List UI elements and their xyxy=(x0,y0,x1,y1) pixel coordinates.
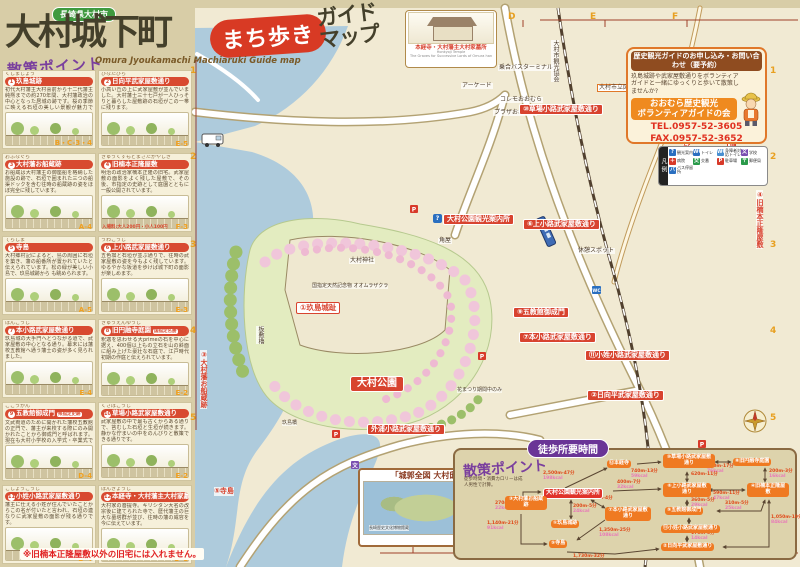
route-edge-label: 310m-5分25kcal xyxy=(725,502,749,512)
route-edge-label: 200m-3分16kcal xyxy=(769,470,793,480)
route-edge-label: 1,350m-25分108kcal xyxy=(599,529,631,539)
route-edge-label: 170m-3分14kcal xyxy=(691,532,715,542)
title-romaji: Omura Jyoukamachi Machiaruki Guide map xyxy=(95,56,301,66)
map-label-flower-festival-parking: 花まつり期間中のみ xyxy=(457,388,502,393)
point-card-4: きゅうくすもとまさたかやしき 4旧楠本正隆屋敷 明治の政治家楠本正隆の旧宅。武家… xyxy=(98,153,192,232)
legend-title: 凡例 xyxy=(659,147,668,185)
map-label-kusumoto-residence: ④旧楠本正隆屋敷 xyxy=(756,190,763,249)
legend-item: 文学校 xyxy=(741,149,765,157)
grid-number-left-3: 3 xyxy=(190,240,196,250)
route-edge-label: 1,050m-19分84kcal xyxy=(771,516,800,526)
map-label-uwakoji-street: ⑥上小路武家屋敷通り xyxy=(523,219,600,230)
post-office-icon: 〒 xyxy=(741,158,748,165)
honkyoji-illustration xyxy=(408,12,494,44)
bus-stop-icon: バ xyxy=(669,167,676,174)
map-label-tourism-association: 大村市観光協会 xyxy=(551,40,559,82)
route-edge-label: 1,730m-32分 xyxy=(573,555,605,560)
svg-text:文: 文 xyxy=(352,462,358,470)
grid-number-left-2: 2 xyxy=(190,152,196,162)
guide-map-sheet: P P P P WC 文 D E F C 1 2 3 4 5 1 2 3 4 5… xyxy=(0,0,800,567)
map-label-itajiki-turret: 板敷櫓 xyxy=(256,326,264,344)
route-edge-label: 200m-5分24kcal xyxy=(573,505,597,515)
point-card-6: うわこうじ 6上小路武家屋敷通り 五色塀と石垣が並ぶ通りで、往時の武家屋敷の姿を… xyxy=(98,236,192,315)
walking-time-box: 徒歩所要時間 散策ポイント 徒歩時間・消費カロリーは成人男性で計算。 xyxy=(453,448,797,560)
svg-text:P: P xyxy=(412,207,417,214)
volunteer-guide-org: おおむら歴史観光ボランティアガイドの会 xyxy=(631,98,737,120)
map-label-coremo-omura: コレモおおむら xyxy=(499,97,543,103)
map-label-kushima-castle: ①玖島城趾 xyxy=(296,302,340,314)
route-node-kushima: ①玖島城跡 xyxy=(551,520,579,528)
point-card-2: ひなたびら 2日向平武家屋敷通り 小高い丘の上に武家屋敷が並んでいました。大村藩… xyxy=(98,70,192,149)
legend-item: ババス停留所 xyxy=(669,166,693,174)
route-node-terashima: ⑤寺島 xyxy=(549,540,567,548)
legend-item: WC身障者対応トイレ xyxy=(717,149,741,157)
point-card-5: てらしま 5寺島 大村郷村記によると、島の周囲に石垣を築き、藩の船番所が置かれて… xyxy=(2,236,96,315)
map-label-omurazakura: 国指定天然記念物 オオムラザクラ xyxy=(312,284,388,289)
legend-item: WCトイレ xyxy=(693,149,717,157)
legend-item: 交交番 xyxy=(693,158,717,165)
map-label-omura-shrine: 大村神社 xyxy=(349,258,375,264)
grid-number-1: 1 xyxy=(770,66,776,76)
map-label-omura-park: 大村公園 xyxy=(350,376,404,392)
honkyoji-inset-box: 本経寺・大村藩主大村家墓所 Honkyoji Temple The Graves… xyxy=(405,10,497,68)
contact-body: 玖島城跡や武家屋敷通りをボランティアガイドと一緒にゆっくりと歩いて散策しませんか… xyxy=(631,73,739,96)
map-label-kadoya: 角屋 xyxy=(438,238,452,244)
grid-letter-f: F xyxy=(672,12,678,22)
point-card-1: くしまじょう 1玖島城跡 初代大村藩主大村喜前から十二代藩主純熈までの約270年… xyxy=(2,70,96,149)
route-edge-label: 620m-11分 xyxy=(691,473,718,478)
route-node-kusaba: ⑩草場小路武家屋敷通り xyxy=(663,454,715,468)
svg-text:P: P xyxy=(334,432,339,439)
toilet-icon: WC xyxy=(693,149,700,156)
map-label-bus-terminal: 乗合バスターミナル xyxy=(498,65,554,71)
map-label-ofunagura: ③大村藩お船蔵跡 xyxy=(200,350,207,409)
route-node-ofunagura: ③大村藩お船蔵跡 xyxy=(505,496,547,510)
legend-item: ＋病院 xyxy=(669,158,693,165)
school-icon: 文 xyxy=(741,149,748,156)
grid-number-left-5: 5 xyxy=(190,413,196,423)
legend-item: ?観光案内 xyxy=(669,149,693,157)
map-label-hokaura-street: 外浦小路武家屋敷通り xyxy=(367,424,445,435)
point-card-8: きゅうえんゆうじ 8旧円融寺庭園国指定名勝 釈迦を思わせる大primeの石を中心… xyxy=(98,319,192,398)
compass-rose xyxy=(744,410,766,432)
route-node-uwakoji: ⑥上小路武家屋敷通り xyxy=(663,483,711,497)
point-card-3: おふなぐら 3大村藩お船蔵跡 お船蔵は大村藩主の御座船を格納した施設の跡で、石垣… xyxy=(2,153,96,232)
map-label-rest-spot: 休憩スポット xyxy=(577,248,615,254)
map-legend: 凡例 ?観光案内 WCトイレ WC身障者対応トイレ 文学校 ＋病院 交交番 P駐… xyxy=(658,146,768,186)
grid-letter-d: D xyxy=(508,12,515,22)
point-title: 1玖島城跡 xyxy=(5,77,93,86)
title-bubble: まち歩き xyxy=(209,13,327,59)
route-node-info-center: 大村公園観光案内所 xyxy=(543,488,603,499)
route-node-koshokoji: ⑪小姓小路武家屋敷通り xyxy=(661,525,720,533)
route-node-honkoji: ⑦本小路武家屋敷通り xyxy=(605,507,651,521)
page-title: 大村城下町 xyxy=(5,15,170,51)
school-icon: 文 xyxy=(351,461,359,470)
guide-contact-box: 歴史観光ガイドのお申し込み・お問い合わせ（要予約） 玖島城跡や武家屋敷通りをボラ… xyxy=(626,47,767,144)
grid-number-left-1: 1 xyxy=(190,66,196,76)
information-icon: ? xyxy=(433,214,442,223)
hospital-icon: ＋ xyxy=(669,158,676,165)
svg-text:WC: WC xyxy=(592,288,601,294)
route-edge-label: 2,500m-47分198kcal xyxy=(543,472,575,482)
accessible-toilet-icon: WC xyxy=(717,149,724,156)
entry-fee: 入場料:大人200円・小人100円 xyxy=(102,224,168,230)
point-card-9: ごこうかん 9五教館御成門県指定史跡 文武両道のために開かれた藩校五教館の正門で… xyxy=(2,402,96,481)
contact-header: 歴史観光ガイドのお申し込み・お問い合わせ（要予約） xyxy=(631,51,762,71)
grid-number-2: 2 xyxy=(770,152,776,162)
route-edge-label: 1,140m-21分91kcal xyxy=(487,522,519,532)
svg-text:P: P xyxy=(480,354,485,361)
guide-character-illustration xyxy=(739,92,763,126)
route-node-hinatabira: ②日向平武家屋敷通り xyxy=(661,543,714,551)
title-suffix: ガイドマップ xyxy=(316,1,381,52)
entry-warning-note: ※旧楠本正隆屋敷以外の旧宅には入れません。 xyxy=(20,548,204,560)
route-node-kusumoto: ④旧楠本正隆屋敷 xyxy=(747,483,789,497)
grid-letter-e: E xyxy=(590,12,596,22)
route-edge-label: 400m-7分32kcal xyxy=(617,481,641,491)
route-edge-label: 740m-13分59kcal xyxy=(631,470,658,480)
map-label-honkoji-street: ⑦本小路武家屋敷通り xyxy=(519,332,596,343)
map-label-gokokan-gate: ⑨五教館御成門 xyxy=(513,307,569,318)
map-label-kusaba-street: ⑩草場小路武家屋敷通り xyxy=(519,104,603,115)
map-label-koshokoji-street: ⑪小姓小路武家屋敷通り xyxy=(585,350,670,361)
grid-number-3: 3 xyxy=(770,240,776,250)
route-node-enyuji: ⑧旧円融寺庭園 xyxy=(733,458,771,466)
legend-item: 〒郵便局 xyxy=(741,158,765,165)
painting-credit: 長崎歴史文化博物館蔵 xyxy=(369,525,409,531)
map-label-hinatabira-street: ②日向平武家屋敷通り xyxy=(587,390,664,401)
parking-icon: P xyxy=(717,158,724,165)
point-card-10: くさばこうじ 10草場小路武家屋敷通り 武家屋敷の中で最も古くからある通りで、苔… xyxy=(98,402,192,481)
map-label-park-info-center: 大村公園観光案内所 xyxy=(443,214,514,225)
map-label-kushima-bridge: 玖島橋 xyxy=(282,421,297,426)
route-node-honkyoji: ⑫本経寺 xyxy=(607,460,631,468)
grid-number-5: 5 xyxy=(770,413,776,423)
map-label-arcade: アーケード xyxy=(461,83,493,89)
police-icon: 交 xyxy=(693,158,700,165)
info-icon: ? xyxy=(669,149,676,156)
map-label-terashima: ⑤寺島 xyxy=(214,487,234,496)
point-card-7: ほんこうじ 7本小路武家屋敷通り 玖島城の大手門へとつながる道で、武家屋敷の中心… xyxy=(2,319,96,398)
legend-item: P駐車場 xyxy=(717,158,741,165)
route-node-gokokan: ⑨五教館御成門 xyxy=(665,507,703,515)
toilet-icon: WC xyxy=(592,286,601,294)
grid-number-4: 4 xyxy=(770,326,776,336)
grid-number-left-4: 4 xyxy=(190,326,196,336)
